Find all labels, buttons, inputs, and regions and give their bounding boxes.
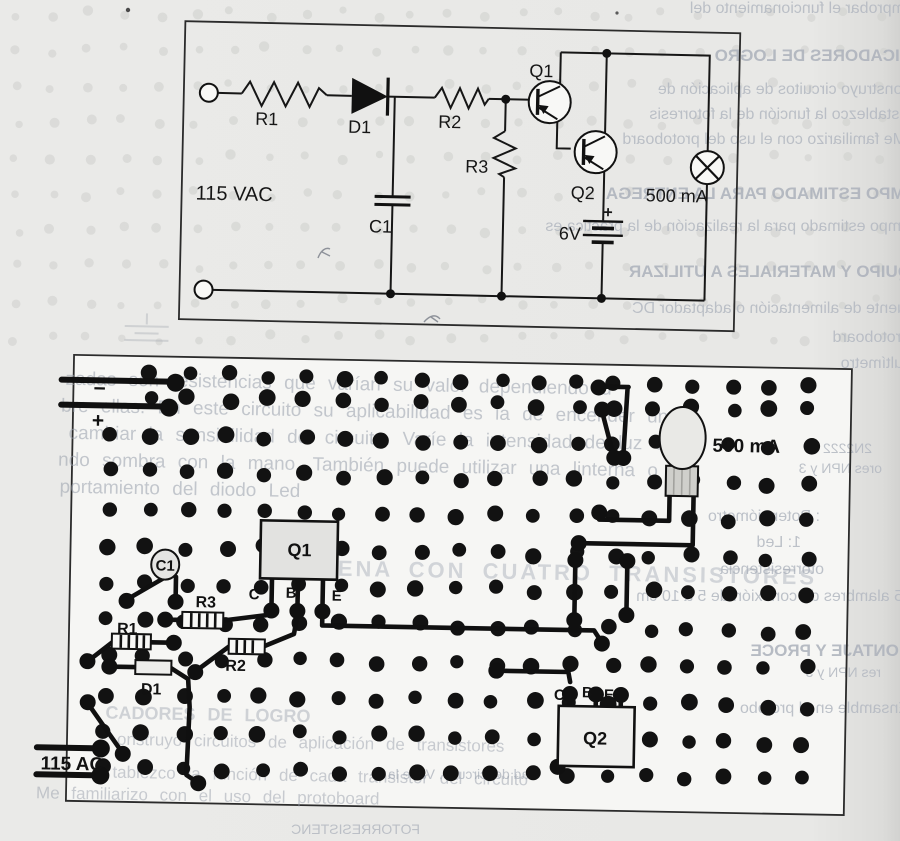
board-label-q1: Q1: [287, 540, 311, 560]
scan-speck: [615, 11, 618, 14]
label-r3: R3: [465, 156, 488, 176]
board-resistor-r3: [182, 612, 223, 629]
bleed-line: rotoboard: [833, 329, 900, 346]
scan-speck: [126, 8, 130, 12]
input-terminal-top: [200, 84, 218, 102]
board-label-minus: −: [93, 377, 106, 400]
bleed-line: Construyo circuitos de aplicación de: [658, 81, 900, 98]
label-q1: Q1: [529, 61, 553, 82]
label-input-voltage: 115 VAC: [195, 182, 273, 206]
board-label-c1: C1: [155, 557, 174, 574]
board-label-plus: +: [92, 409, 105, 432]
scanned-page: mprobar el funcionamiento del DICADORES …: [0, 0, 900, 841]
faint-footer-line: CADORES DE LOGRO: [105, 703, 310, 727]
resistor-r3: [493, 131, 516, 177]
label-d1: D1: [348, 117, 371, 137]
transistor-q2: [574, 131, 617, 174]
bleed-battery-mark: [124, 313, 169, 341]
bleed-line: Establezco la función de la fotorresis: [649, 106, 900, 123]
label-c1: C1: [369, 216, 392, 236]
board-label-q1-c: C: [249, 586, 260, 603]
board-label-q2-e: E: [604, 687, 614, 704]
bleed-line: 2N2222: [823, 440, 872, 456]
board-label-r2: R2: [225, 658, 246, 675]
bleed-line: mprobar el funcionamiento del: [690, 0, 900, 17]
bleed-line: res NPN y 3: [805, 664, 881, 680]
board-label-q2-b: B: [582, 684, 593, 701]
label-r2: R2: [438, 112, 461, 132]
bleed-line: ores NPN y 3: [799, 460, 882, 476]
board-resistor-r2: [229, 639, 265, 655]
board-diode-d1: [135, 660, 171, 675]
board-label-d1: D1: [141, 681, 162, 698]
label-r1: R1: [255, 109, 278, 129]
board-label-q1-e: E: [332, 588, 342, 605]
bleed-line: MONTAJE Y PROCE: [751, 641, 900, 660]
board-label-ac-input: 115 AC: [40, 753, 103, 775]
capacitor-c1: [374, 196, 410, 205]
lamp-symbol: [690, 151, 724, 185]
transistor-q1: [528, 81, 571, 124]
bleed-line: FOTORRESISTENC: [291, 821, 420, 837]
resistor-r1: [242, 81, 328, 107]
label-q2: Q2: [571, 183, 595, 204]
label-lamp-rating: 500 mA: [645, 185, 707, 206]
board-label-q1-b: B: [286, 585, 297, 602]
schematic-frame: [179, 21, 740, 331]
label-battery-voltage: 6V: [559, 223, 581, 243]
board-label-r1: R1: [117, 621, 138, 638]
board-label-lamp-rating: 500 mA: [712, 436, 780, 458]
input-terminal-bottom: [194, 280, 212, 298]
diode-d1: [351, 77, 388, 116]
label-battery-plus: +: [603, 204, 613, 221]
bleed-line: 1: Led: [757, 534, 801, 551]
bleed-line: uente de alimentación o adaptador DC: [632, 300, 900, 317]
board-label-q2: Q2: [583, 728, 607, 748]
page-art: mprobar el funcionamiento del DICADORES …: [0, 0, 900, 841]
resistor-r2: [435, 88, 489, 109]
bleed-line: QUIPO Y MATERIALES A UTILIZAR: [629, 262, 900, 281]
bleed-line: Me familiarizo con el uso del protoboard: [622, 131, 900, 148]
bleed-line: DICADORES DE LOGRO: [715, 46, 900, 65]
board-label-q2-c: C: [554, 687, 565, 704]
board-label-r3: R3: [195, 594, 216, 611]
